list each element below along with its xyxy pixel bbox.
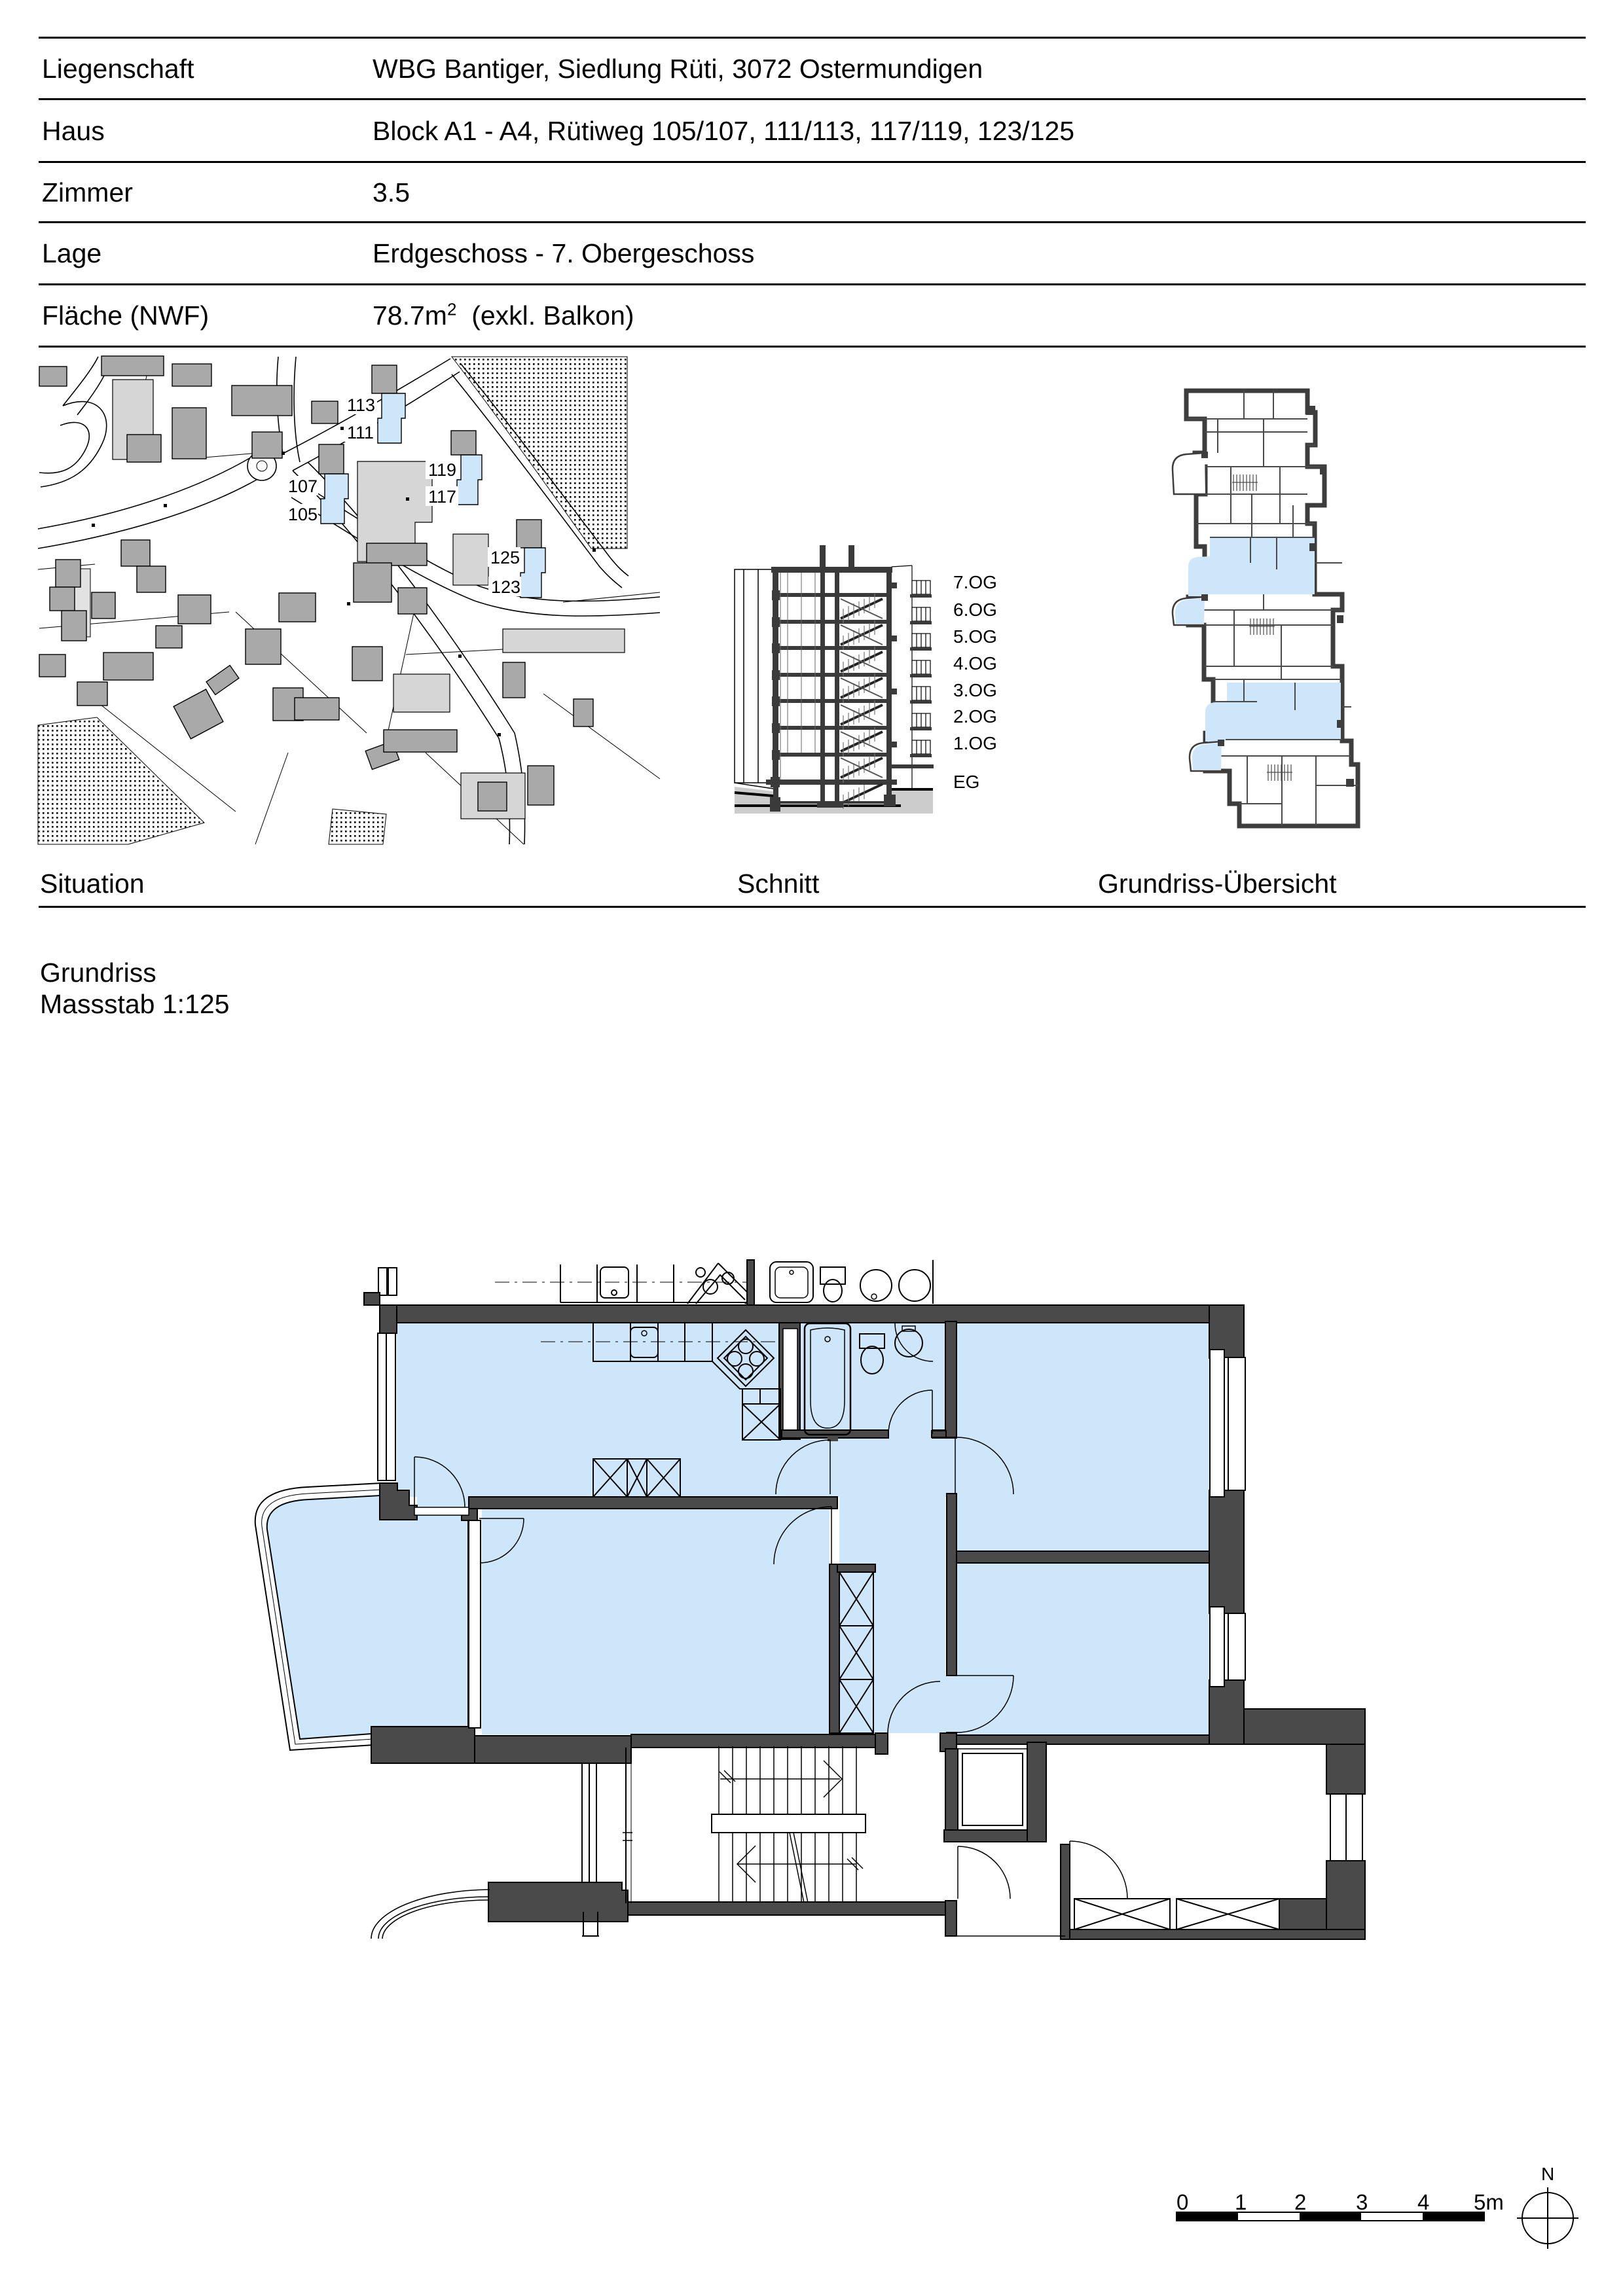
svg-text:1: 1: [1235, 2190, 1247, 2214]
svg-text:N: N: [1541, 2164, 1554, 2184]
svg-text:5m: 5m: [1474, 2190, 1504, 2214]
svg-text:2: 2: [1294, 2190, 1306, 2214]
svg-text:0: 0: [1176, 2190, 1188, 2214]
svg-text:3: 3: [1356, 2190, 1368, 2214]
svg-text:4: 4: [1417, 2190, 1429, 2214]
